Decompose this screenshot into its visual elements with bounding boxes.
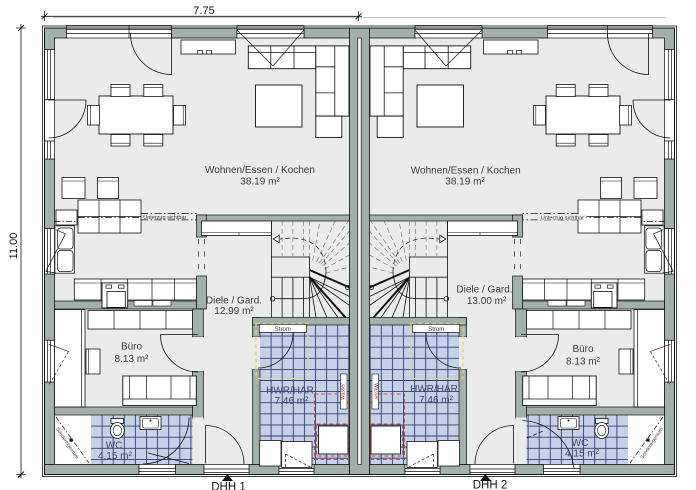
svg-text:4.15 m²: 4.15 m² [565,449,600,460]
svg-text:7.75: 7.75 [193,5,214,17]
svg-text:Strom: Strom [428,327,444,333]
svg-text:Unterzug sichtbar: Unterzug sichtbar [143,215,186,221]
svg-text:Diele / Gard.: Diele / Gard. [456,285,512,296]
svg-text:7.46 m²: 7.46 m² [275,396,310,407]
svg-text:38.19 m²: 38.19 m² [445,177,485,188]
svg-text:WC: WC [106,441,123,452]
svg-text:WC: WC [572,438,589,449]
svg-text:Büro: Büro [572,344,594,355]
svg-text:DHH 1: DHH 1 [211,482,246,490]
svg-text:4.15 m²: 4.15 m² [98,451,133,462]
svg-text:Unterzug sichtbar: Unterzug sichtbar [541,216,584,222]
svg-text:11.00: 11.00 [8,233,20,260]
svg-text:Wasser: Wasser [373,383,379,400]
svg-text:8.13 m²: 8.13 m² [566,357,601,368]
svg-text:8.13 m²: 8.13 m² [115,354,150,365]
svg-text:12.99 m²: 12.99 m² [214,306,254,317]
svg-text:HWR/HAR: HWR/HAR [410,384,458,395]
svg-text:HWR/HAR: HWR/HAR [266,386,314,397]
svg-text:Wohnen/Essen / Kochen: Wohnen/Essen / Kochen [411,166,521,177]
svg-text:13.00 m²: 13.00 m² [467,296,507,307]
svg-text:Diele / Gard.: Diele / Gard. [206,296,262,307]
svg-text:DHH 2: DHH 2 [473,480,508,490]
svg-text:Wasser: Wasser [341,383,347,400]
svg-text:Strom: Strom [275,327,291,333]
svg-text:Wohnen/Essen / Kochen: Wohnen/Essen / Kochen [205,165,315,176]
svg-text:7.46 m²: 7.46 m² [419,395,454,406]
svg-text:Büro: Büro [121,342,143,353]
svg-text:38.19 m²: 38.19 m² [240,177,280,188]
